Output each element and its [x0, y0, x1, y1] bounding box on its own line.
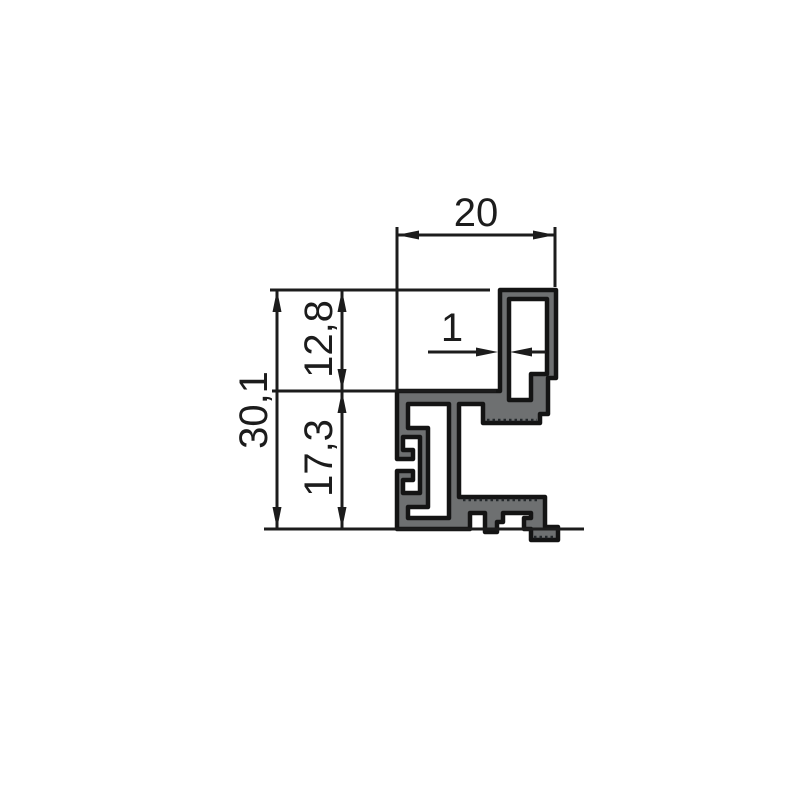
arrowhead-right — [533, 231, 555, 240]
drawing-canvas: 20 30,1 12,8 17,3 1 — [0, 0, 800, 800]
arrowhead-bottom — [273, 507, 282, 529]
arrowhead-lower-bottom — [338, 507, 347, 529]
arrowhead-wall-left — [476, 348, 498, 357]
arrowhead-top — [273, 290, 282, 312]
dimension-wall-thickness: 1 — [428, 306, 546, 357]
dimension-overall-height: 30,1 — [232, 290, 282, 529]
dimension-segment-heights: 12,8 17,3 — [297, 290, 347, 529]
dimension-label-wall-thickness: 1 — [441, 306, 463, 350]
dimension-label-overall-width: 20 — [454, 191, 499, 235]
arrowhead-left — [397, 231, 419, 240]
dimension-label-overall-height: 30,1 — [232, 371, 276, 449]
arrowhead-lower-top — [338, 391, 347, 413]
arrowhead-wall-right — [510, 348, 532, 357]
technical-drawing: 20 30,1 12,8 17,3 1 — [0, 0, 800, 800]
dimension-label-lower-height: 17,3 — [297, 419, 341, 497]
dimension-overall-width: 20 — [397, 191, 555, 240]
profile-cross-section — [397, 290, 558, 540]
dimension-label-upper-height: 12,8 — [297, 300, 341, 378]
